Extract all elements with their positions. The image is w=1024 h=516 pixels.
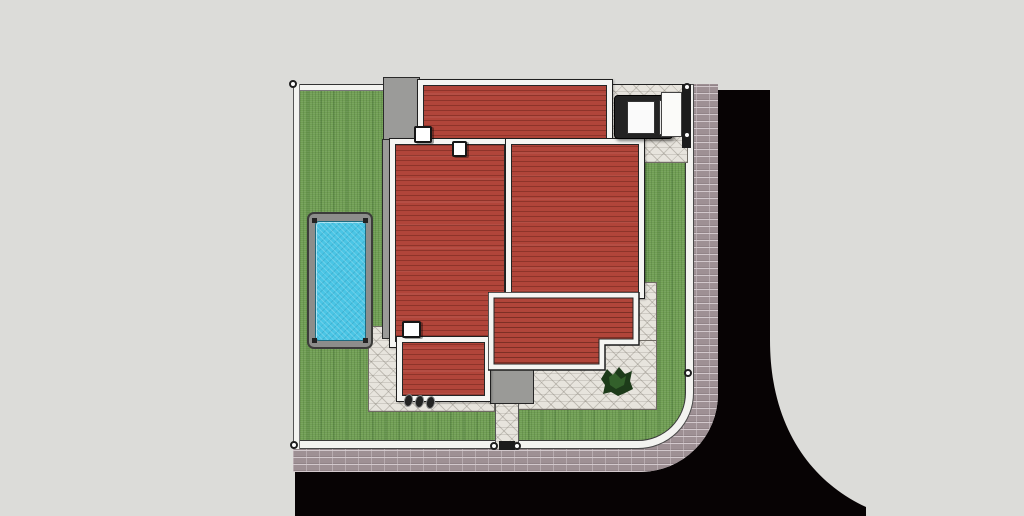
roof-section-right-main [505,138,645,299]
pool-corner-post [312,338,317,343]
roof-bottom-left-shingles [402,342,485,396]
gate-post [683,83,691,91]
car-roof [627,101,655,134]
pool-deck [307,212,373,349]
gate-post [683,131,691,139]
fence-post [684,369,692,377]
chimney [452,141,467,157]
fence-post [290,441,298,449]
gate-post [490,442,498,450]
roof-top-shingles [423,85,607,142]
pool-water [315,221,366,341]
corner-shrub [599,365,635,398]
pool-corner-post [363,218,368,223]
site-plan-viewport[interactable] [0,0,1024,516]
roof-section-bottom-right [488,292,641,372]
roof-section-bottom-left [396,336,491,402]
fence-post [289,80,297,88]
pool-corner-post [312,218,317,223]
chimney [402,321,421,338]
chimney [414,126,432,143]
roof-right-shingles [511,144,639,293]
fence-left [293,84,300,449]
gate-post [513,442,521,450]
roof-bottom-right-shingles [494,298,633,364]
pool-corner-post [363,338,368,343]
driveway-gate-door [661,92,682,137]
